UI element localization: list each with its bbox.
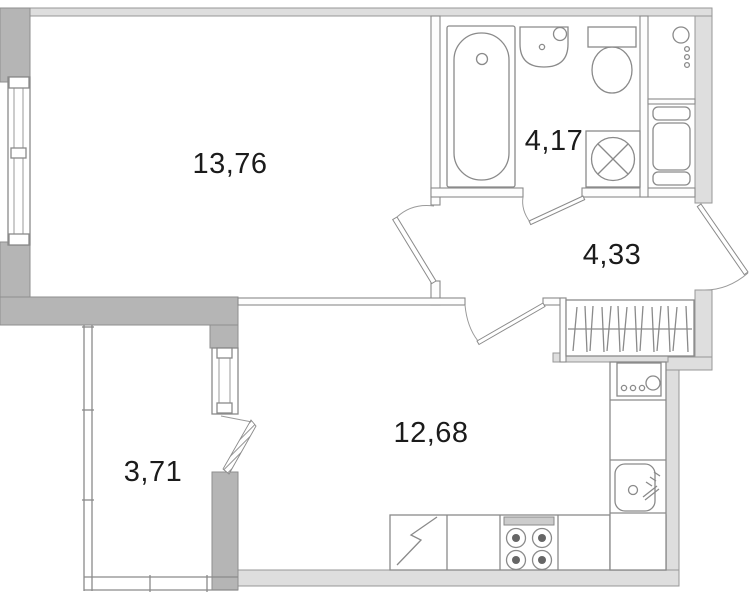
bathroom-fixtures <box>447 26 640 187</box>
window-balcony <box>212 348 238 414</box>
wall-left-upper <box>0 8 30 82</box>
window-living-room <box>8 77 30 245</box>
wall-room-hall-upper <box>431 16 440 205</box>
balcony-door <box>221 416 256 474</box>
label-kitchen-living-room: 12,68 <box>393 417 468 449</box>
hob-unit-icon <box>617 363 661 396</box>
wall-right-upper <box>695 16 712 203</box>
label-hallway: 4,33 <box>583 239 641 271</box>
structural-walls <box>0 8 238 590</box>
washing-machine-icon <box>586 131 640 187</box>
wall-balcony-right <box>212 472 238 590</box>
wall-wardrobe-left <box>560 298 566 362</box>
wall-bath-left <box>431 188 523 197</box>
wall-right-mid <box>695 290 712 357</box>
wash-basin-icon <box>520 27 568 67</box>
floor-plan-drawing: 13,76 4,17 4,33 12,68 3,71 <box>0 0 754 600</box>
label-bathroom: 4,17 <box>525 125 583 157</box>
wall-step <box>666 357 712 370</box>
service-shaft <box>653 27 690 185</box>
label-balcony: 3,71 <box>124 456 182 488</box>
ventilation-shaft-icon <box>673 27 689 67</box>
wall-right-lower <box>666 370 679 586</box>
living-room-door <box>393 205 436 283</box>
wall-duct-horizontal <box>648 99 695 104</box>
heater-column-icon <box>653 107 690 185</box>
balcony-glazing-left <box>82 325 94 591</box>
bathtub-icon <box>447 26 515 187</box>
entrance-door <box>697 204 748 290</box>
bathroom-door <box>523 196 585 225</box>
wall-duct-divider <box>640 16 648 197</box>
wall-top <box>28 8 712 16</box>
wall-room-balcony <box>0 297 238 325</box>
pillar-balcony <box>210 325 238 348</box>
floor-plan: 13,76 4,17 4,33 12,68 3,71 <box>0 0 754 600</box>
kitchen-door <box>465 303 545 345</box>
wardrobe <box>566 300 694 356</box>
wall-bottom <box>238 570 679 586</box>
label-living-room: 13,76 <box>192 148 267 180</box>
wall-bath-right <box>582 188 695 197</box>
kitchen <box>390 362 666 570</box>
kitchen-sink-icon <box>615 464 660 511</box>
wall-hall-kitchen-left <box>238 298 465 305</box>
toilet-icon <box>588 27 636 93</box>
